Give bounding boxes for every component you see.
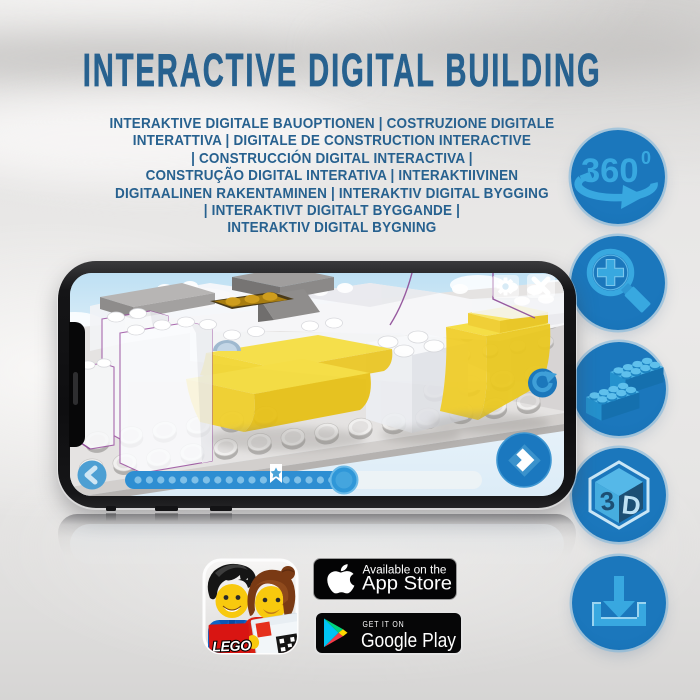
svg-text:LEGO: LEGO xyxy=(212,637,251,654)
svg-text:Google Play: Google Play xyxy=(361,630,456,652)
svg-text:D: D xyxy=(620,489,642,521)
svg-text:App Store: App Store xyxy=(362,573,452,595)
svg-text:GET IT ON: GET IT ON xyxy=(363,619,405,629)
svg-text:0: 0 xyxy=(641,148,651,168)
svg-text:360: 360 xyxy=(581,152,639,190)
